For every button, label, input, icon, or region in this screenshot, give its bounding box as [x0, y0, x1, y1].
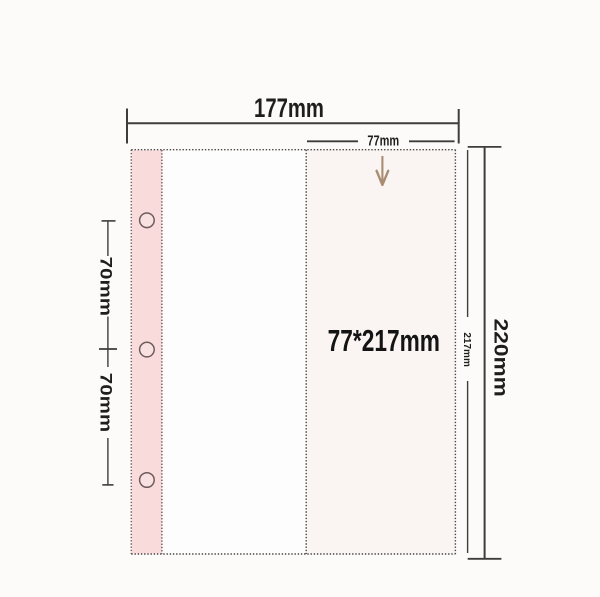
svg-text:77*217mm: 77*217mm	[328, 324, 440, 358]
svg-text:177mm: 177mm	[254, 93, 324, 122]
svg-text:77mm: 77mm	[367, 132, 399, 149]
svg-text:220mm: 220mm	[490, 319, 511, 397]
svg-text:217mm: 217mm	[461, 332, 472, 367]
svg-text:70mm: 70mm	[97, 257, 115, 316]
svg-text:70mm: 70mm	[97, 373, 115, 432]
